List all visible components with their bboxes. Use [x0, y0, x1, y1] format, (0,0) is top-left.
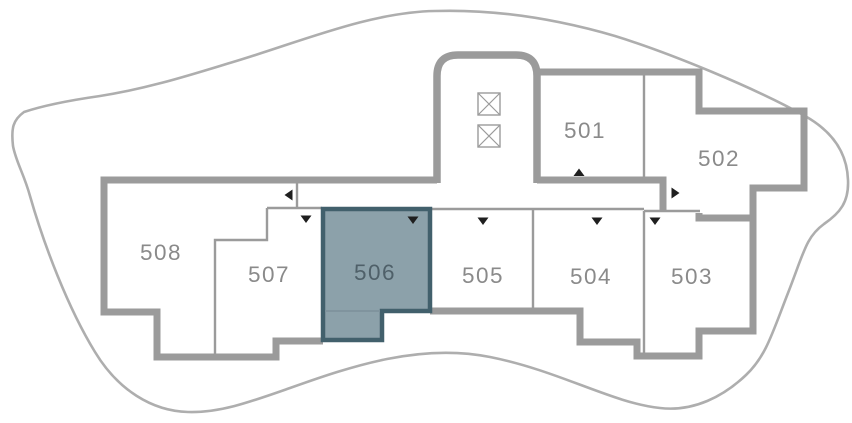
- unit-501: 501: [541, 76, 641, 177]
- unit-503-label: 503: [671, 264, 713, 289]
- elevator-cross: [478, 125, 500, 147]
- floorplan-unit-selector: 506 501 502 503 504 505 507 508: [0, 0, 852, 423]
- corridor-east-wall: [537, 180, 663, 211]
- unit-504-label: 504: [570, 264, 612, 289]
- elevator-cross: [478, 93, 500, 115]
- unit-505-label: 505: [462, 263, 504, 288]
- unit-region-505[interactable]: [434, 211, 531, 308]
- elevator-icon: [478, 93, 500, 115]
- unit-505: 505: [434, 211, 531, 308]
- unit-508-label: 508: [140, 240, 182, 265]
- unit-507-label: 507: [248, 262, 290, 287]
- unit-501-label: 501: [564, 118, 606, 143]
- unit-504: 504: [535, 211, 642, 351]
- unit-502-label: 502: [698, 146, 740, 171]
- unit-502: 502: [646, 76, 802, 216]
- elevator-icon: [478, 125, 500, 147]
- unit-506-label: 506: [354, 260, 396, 285]
- unit-506: 506: [323, 209, 430, 340]
- elevator-core: [478, 93, 500, 147]
- floorplan-canvas: 506 501 502 503 504 505 507 508: [0, 0, 852, 423]
- elevator-core-wall: [437, 55, 537, 183]
